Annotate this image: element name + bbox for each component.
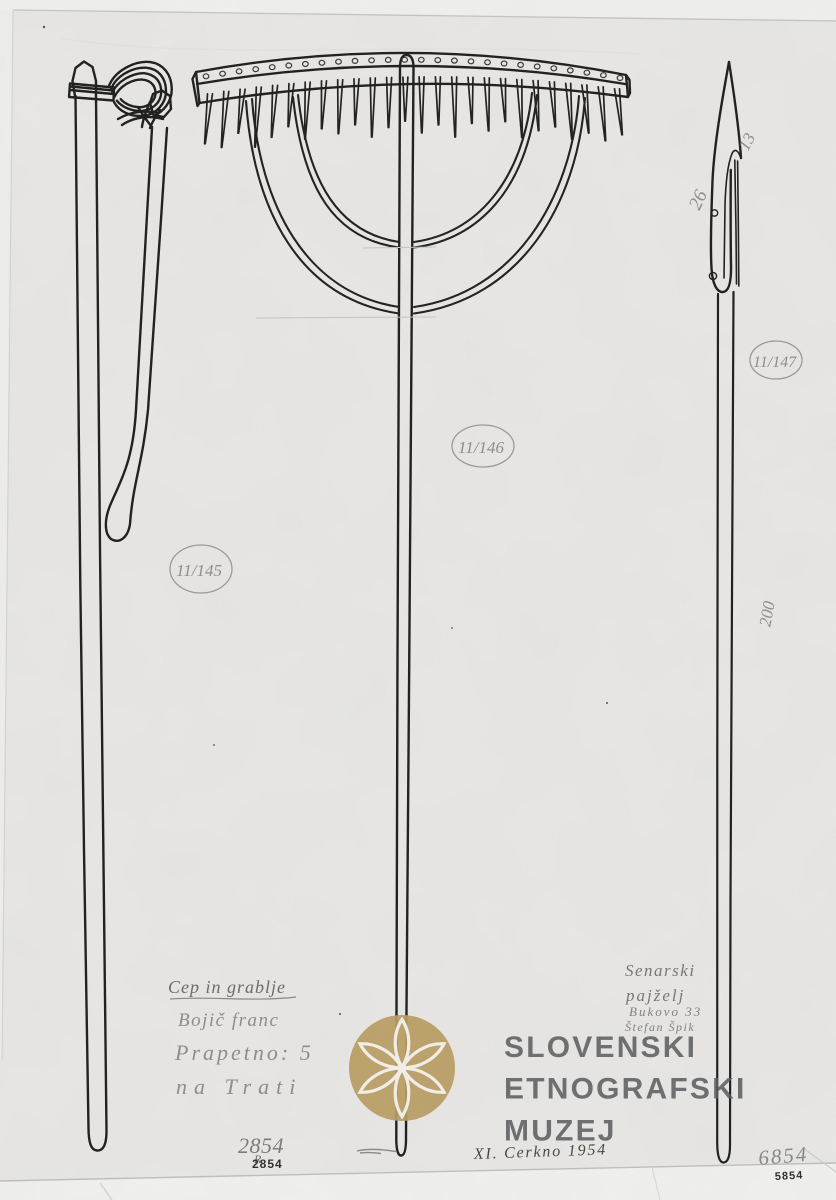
svg-text:Bukovo 33: Bukovo 33: [629, 1004, 702, 1019]
svg-text:MUZEJ: MUZEJ: [504, 1115, 617, 1148]
svg-text:na Trati: na Trati: [176, 1074, 302, 1099]
svg-text:6854: 6854: [757, 1142, 809, 1170]
svg-text:SLOVENSKI: SLOVENSKI: [504, 1031, 697, 1064]
svg-text:Senarski: Senarski: [625, 961, 696, 980]
svg-text:Prapetno: 5: Prapetno: 5: [174, 1040, 314, 1065]
svg-text:pajželj: pajželj: [625, 986, 685, 1005]
svg-text:Cep in grablje: Cep in grablje: [168, 977, 286, 997]
svg-text:11/145: 11/145: [176, 561, 222, 580]
svg-text:ETNOGRAFSKI: ETNOGRAFSKI: [504, 1073, 747, 1106]
svg-text:11/146: 11/146: [458, 438, 504, 457]
svg-text:11/147: 11/147: [753, 354, 797, 371]
svg-text:2854: 2854: [252, 1157, 283, 1171]
svg-text:5854: 5854: [775, 1170, 804, 1183]
svg-text:Bojič franc: Bojič franc: [178, 1010, 279, 1031]
